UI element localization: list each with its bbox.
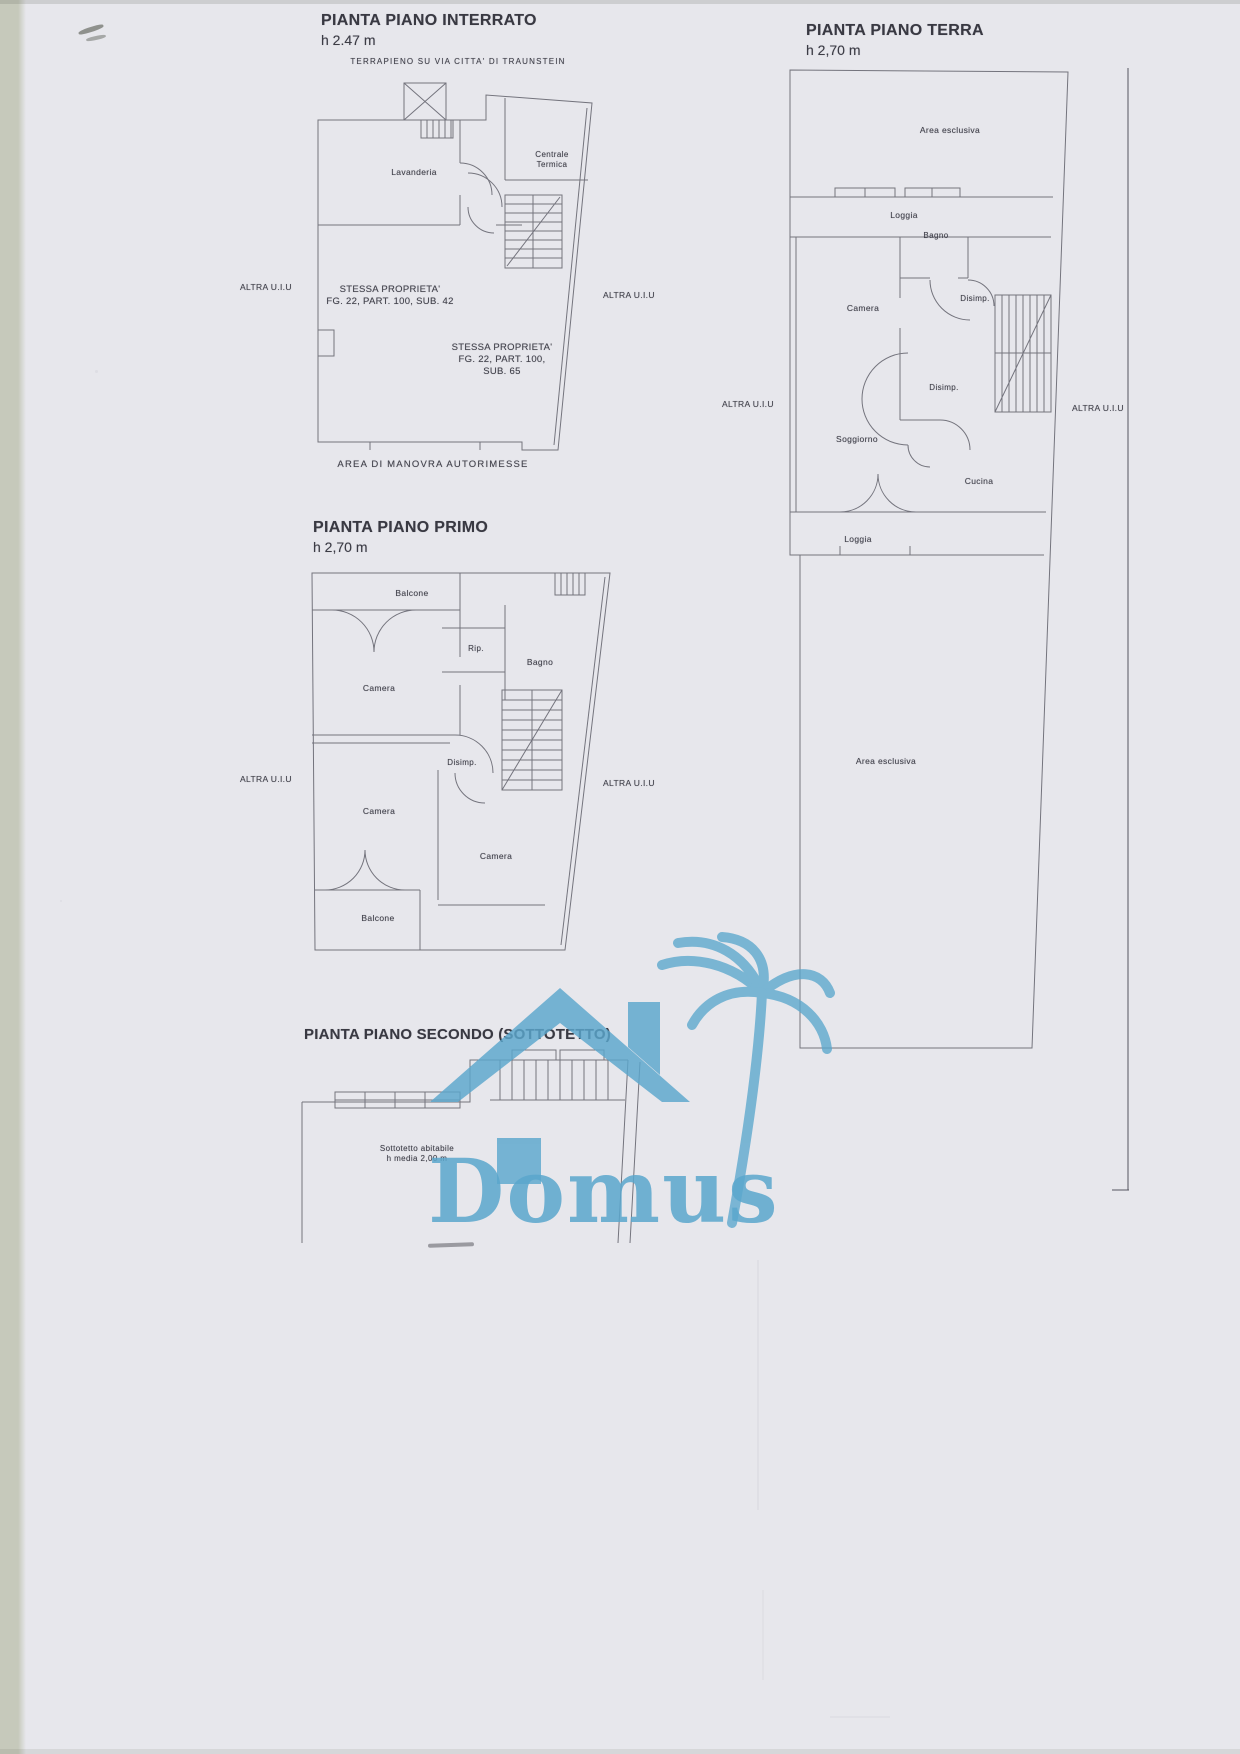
scan-speck: [95, 370, 98, 373]
plan-title-interrato: PIANTA PIANO INTERRATO: [321, 11, 537, 31]
plan-title-terra: PIANTA PIANO TERRA: [806, 21, 984, 41]
room-label-camera: Camera: [363, 683, 395, 694]
page-boundary-foot: [1112, 1189, 1129, 1191]
scan-top-shadow: [0, 0, 1240, 4]
label-altra-uiu: ALTRA U.I.U: [1072, 403, 1124, 414]
label-altra-uiu: ALTRA U.I.U: [240, 774, 292, 785]
room-label-cucina: Cucina: [965, 476, 994, 487]
label-terrapieno: TERRAPIENO SU VIA CITTA' DI TRAUNSTEIN: [350, 57, 565, 67]
label-stessa-proprieta-sub42: STESSA PROPRIETA' FG. 22, PART. 100, SUB…: [326, 284, 453, 308]
room-label-disimp: Disimp.: [929, 383, 958, 393]
label-area-esclusiva-top: Area esclusiva: [920, 125, 980, 136]
room-label-bagno: Bagno: [527, 657, 553, 668]
label-area-manovra: AREA DI MANOVRA AUTORIMESSE: [337, 459, 528, 471]
room-label-camera: Camera: [480, 851, 512, 862]
room-label-balcone-top: Balcone: [395, 588, 428, 599]
label-stessa-proprieta-sub65: STESSA PROPRIETA' FG. 22, PART. 100, SUB…: [452, 342, 553, 378]
room-label-soggiorno: Soggiorno: [836, 434, 878, 445]
room-label-bagno: Bagno: [923, 231, 948, 241]
scan-bottom-shadow: [0, 1749, 1240, 1754]
room-label-disimp: Disimp.: [447, 758, 476, 768]
plan-height-interrato: h 2.47 m: [321, 32, 375, 50]
label-altra-uiu: ALTRA U.I.U: [603, 778, 655, 789]
scan-streak: [830, 1716, 890, 1718]
scan-smudge: [86, 34, 106, 42]
room-label-rip: Rip.: [468, 644, 484, 654]
domus-wordmark: Domus: [428, 1147, 780, 1235]
room-label-centrale-termica: Centrale Termica: [535, 150, 568, 170]
plan-title-primo: PIANTA PIANO PRIMO: [313, 518, 488, 538]
label-altra-uiu: ALTRA U.I.U: [603, 290, 655, 301]
label-area-esclusiva-bottom: Area esclusiva: [856, 756, 916, 767]
scan-streak: [757, 1260, 759, 1510]
scan-speck: [60, 900, 62, 902]
plan-height-primo: h 2,70 m: [313, 539, 367, 557]
scanner-edge-strip: [0, 0, 26, 1754]
room-label-loggia-top: Loggia: [890, 210, 918, 221]
label-altra-uiu: ALTRA U.I.U: [240, 282, 292, 293]
label-altra-uiu: ALTRA U.I.U: [722, 399, 774, 410]
scan-streak: [762, 1590, 764, 1680]
room-label-disimp: Disimp.: [960, 294, 989, 304]
plan-height-terra: h 2,70 m: [806, 42, 860, 60]
room-label-balcone-bottom: Balcone: [361, 913, 394, 924]
terra-drawing: [780, 58, 1080, 1058]
page-boundary-line: [1127, 68, 1129, 1190]
scanned-floorplan-page: PIANTA PIANO INTERRATO h 2.47 m TERRAPIE…: [0, 0, 1240, 1754]
room-label-camera: Camera: [847, 303, 879, 314]
room-label-loggia-bottom: Loggia: [844, 534, 872, 545]
domus-logo: Domus: [410, 935, 840, 1245]
interrato-drawing: [300, 73, 635, 473]
room-label-lavanderia: Lavanderia: [391, 167, 437, 178]
room-label-camera: Camera: [363, 806, 395, 817]
